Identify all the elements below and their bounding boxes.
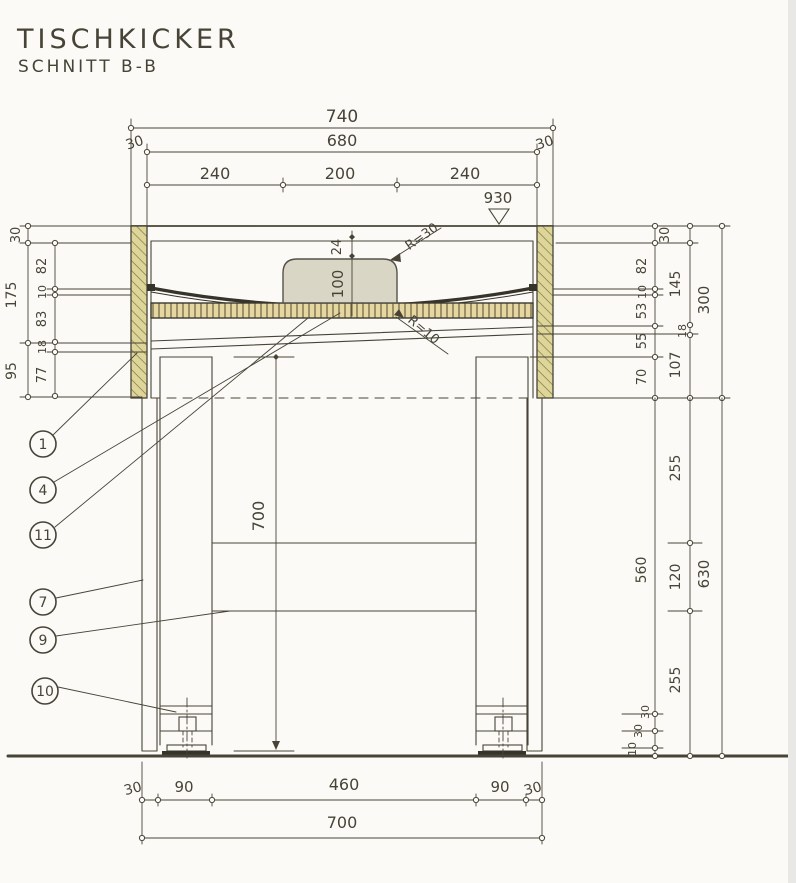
leader-part-1 [53, 353, 137, 435]
dim-label-24: 24 [330, 239, 345, 256]
dim-label-b-460: 460 [329, 775, 360, 794]
dim-label-left-175: 175 [4, 282, 20, 309]
under-board-rails [151, 327, 533, 349]
dim-label-680: 680 [327, 131, 358, 150]
dim-label-left-10: 10 [36, 285, 49, 299]
dim-label-rb-30a: 30 [639, 705, 652, 719]
dim-label-200: 200 [325, 164, 356, 183]
cross-beam [212, 543, 476, 611]
part-number-11: 11 [34, 528, 52, 544]
skirt-right [527, 398, 542, 751]
level-marker-label: 930 [484, 189, 513, 207]
dim-label-rt-145: 145 [668, 271, 684, 298]
dim-label-left-83: 83 [35, 311, 50, 328]
foot-right-screw [495, 717, 512, 731]
dim-label-rb-255a: 255 [668, 455, 684, 482]
part-callout-4: 4 [30, 477, 56, 503]
technical-drawing: 740 30 680 30 240 200 240 930 [0, 0, 796, 883]
top-dimension-chains: 740 30 680 30 240 200 240 [124, 107, 556, 226]
foot-right-base [478, 751, 526, 755]
foot-left-pad [167, 745, 206, 751]
foot-left [160, 698, 212, 760]
dim-label-30-top-right: 30 [534, 133, 556, 154]
leg-height-dimension: 700 [234, 354, 294, 751]
left-dimension-chains: 30 175 95 82 10 83 18 77 [4, 223, 147, 399]
dim-label-left-30: 30 [9, 227, 24, 244]
part-callout-11: 11 [30, 522, 56, 548]
dim-label-left-18: 18 [36, 340, 49, 354]
dim-label-left-77: 77 [35, 367, 50, 384]
right-bottom-dimension-chains: 560 30 30 10 255 120 255 630 [622, 398, 725, 759]
dim-label-rb-120: 120 [668, 564, 684, 591]
table-top-assembly: 24 100 R=30 R=10 [131, 221, 553, 398]
leg-left [160, 398, 212, 745]
dim-label-rb-10: 10 [626, 742, 639, 756]
part-callout-10: 10 [32, 678, 58, 704]
leader-part-7 [56, 580, 143, 598]
leader-part-9 [56, 611, 230, 636]
dim-label-b-90r: 90 [490, 778, 509, 796]
part-number-4: 4 [39, 483, 48, 499]
dim-label-rt-300: 300 [695, 286, 713, 315]
foot-right [476, 698, 528, 760]
dim-label-100: 100 [329, 270, 347, 299]
part-number-7: 7 [39, 595, 48, 611]
dim-label-b-30l: 30 [122, 779, 143, 799]
side-wall-left [131, 226, 147, 398]
part-callouts: 1 4 11 7 9 10 [30, 313, 340, 712]
part-number-10: 10 [36, 684, 54, 700]
part-callout-7: 7 [30, 589, 56, 615]
right-top-dimension-chains: 30 82 10 53 55 70 145 18 107 300 [530, 223, 730, 400]
dim-label-240-right: 240 [450, 164, 481, 183]
dim-label-rb-560: 560 [634, 557, 650, 584]
leg-height-diamond [273, 354, 279, 360]
dim-label-rt-82: 82 [635, 258, 650, 275]
foot-right-pad [483, 745, 522, 751]
dim-label-rt-107: 107 [668, 352, 684, 379]
dim-label-rb-255b: 255 [668, 667, 684, 694]
leg-top-right [476, 357, 528, 398]
leader-part-11 [55, 318, 308, 527]
dim-label-240-left: 240 [200, 164, 231, 183]
dim-label-rt-70: 70 [635, 369, 650, 386]
foot-left-screw [179, 717, 196, 731]
undercarriage [8, 357, 789, 760]
dim-diamond-bottom [349, 253, 355, 259]
leg-height-dim-lines [234, 357, 294, 751]
part-number-9: 9 [39, 633, 48, 649]
dim-label-b-30r: 30 [522, 779, 543, 799]
leg-height-arrow-icon [272, 741, 280, 750]
playfield-board [151, 303, 533, 318]
foot-left-plates [160, 706, 212, 731]
foot-left-base [162, 751, 210, 755]
dim-label-rt-30: 30 [658, 227, 673, 244]
dim-label-rb-30b: 30 [632, 724, 645, 738]
dim-label-30-top-left: 30 [124, 133, 146, 154]
dim-label-b-700: 700 [327, 813, 358, 832]
bottom-dimension-chains: 30 90 460 90 30 700 [122, 762, 544, 844]
dim-diamond-top [349, 234, 355, 240]
dim-label-rt-18: 18 [676, 324, 689, 338]
dim-label-740: 740 [326, 107, 358, 127]
page-edge-strip [788, 0, 796, 883]
drawing-sheet: TISCHKICKER SCHNITT B-B 740 30 680 [0, 0, 796, 883]
dim-label-rt-53: 53 [635, 303, 650, 320]
part-callout-1: 1 [30, 431, 56, 457]
part-number-1: 1 [39, 437, 48, 453]
side-wall-right [537, 226, 553, 398]
dim-label-leg-700: 700 [249, 501, 268, 532]
dim-label-rt-55: 55 [635, 333, 650, 350]
skirt-left [142, 398, 157, 751]
foot-right-plates [476, 706, 528, 731]
dim-label-rt-10: 10 [636, 285, 649, 299]
dim-label-left-95: 95 [4, 362, 20, 380]
level-marker-930: 930 [484, 189, 513, 224]
level-marker-triangle-icon [489, 209, 509, 224]
part-callout-9: 9 [30, 627, 56, 653]
leader-part-10 [58, 687, 176, 712]
leg-top-left [160, 357, 212, 398]
dim-label-rb-630: 630 [695, 560, 713, 589]
dim-label-left-82: 82 [35, 258, 50, 275]
leg-right [476, 398, 528, 745]
dim-label-b-90l: 90 [174, 778, 193, 796]
